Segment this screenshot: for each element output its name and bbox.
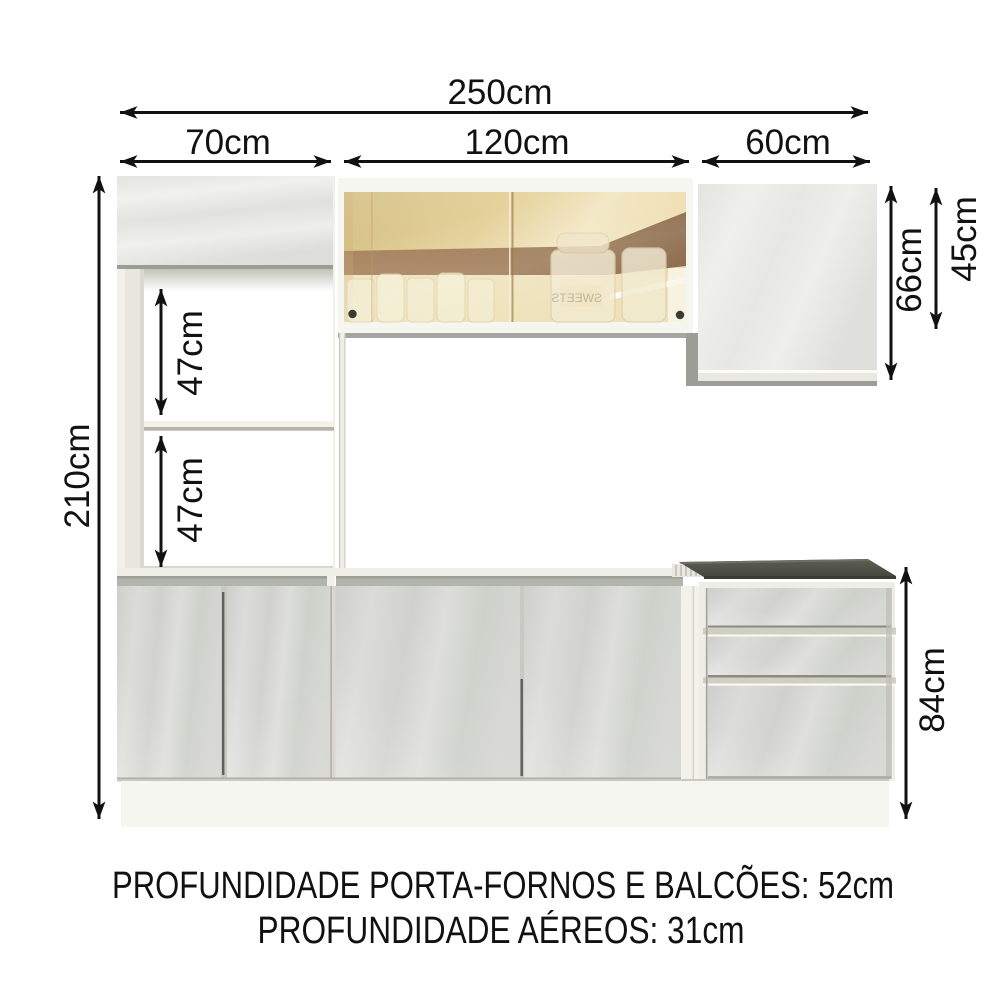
svg-text:210cm: 210cm xyxy=(58,423,97,528)
svg-text:PROFUNDIDADE PORTA-FORNOS E BA: PROFUNDIDADE PORTA-FORNOS E BALCÕES: 52c… xyxy=(112,863,894,907)
svg-text:250cm: 250cm xyxy=(447,73,552,112)
svg-text:70cm: 70cm xyxy=(185,123,271,162)
svg-text:66cm: 66cm xyxy=(890,227,929,313)
svg-text:47cm: 47cm xyxy=(171,457,210,543)
svg-text:60cm: 60cm xyxy=(745,123,831,162)
svg-text:45cm: 45cm xyxy=(945,196,984,282)
svg-text:120cm: 120cm xyxy=(464,123,569,162)
svg-text:PROFUNDIDADE AÉREOS: 31cm: PROFUNDIDADE AÉREOS: 31cm xyxy=(258,909,745,952)
svg-text:84cm: 84cm xyxy=(913,647,952,733)
svg-text:47cm: 47cm xyxy=(171,310,210,396)
